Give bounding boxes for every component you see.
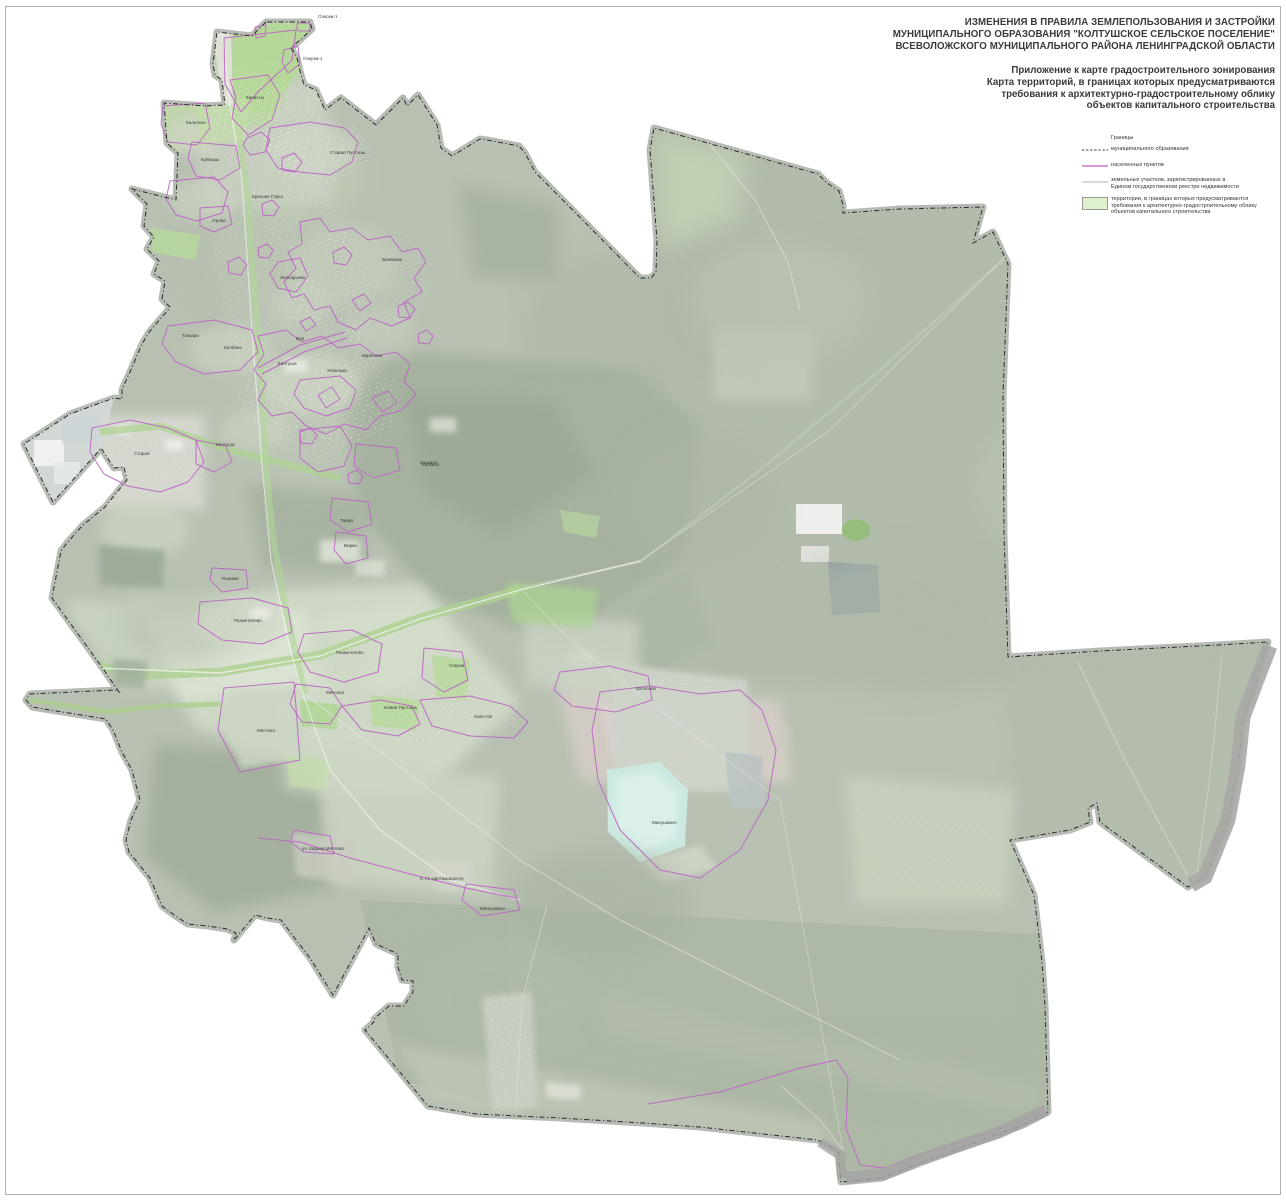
- svg-text:Вирки: Вирки: [344, 543, 357, 548]
- svg-text:Рыжики: Рыжики: [222, 576, 239, 581]
- svg-text:Старая Пустошь: Старая Пустошь: [330, 150, 366, 155]
- svg-text:Разметелево: Разметелево: [234, 618, 262, 623]
- svg-text:Новая Пустошь: Новая Пустошь: [384, 705, 418, 710]
- svg-text:Хязельки: Хязельки: [327, 368, 347, 373]
- svg-text:Орово: Орово: [212, 218, 226, 223]
- svg-text:Кальтино: Кальтино: [186, 120, 206, 125]
- svg-text:Хапо-Ое: Хапо-Ое: [474, 714, 493, 719]
- svg-text:уч. Карьер Мяглово: уч. Карьер Мяглово: [302, 846, 344, 851]
- svg-text:Старая: Старая: [134, 451, 150, 456]
- svg-text:Воейково: Воейково: [382, 256, 403, 262]
- svg-text:Озерки-1: Озерки-1: [318, 14, 338, 19]
- svg-text:Манушкино: Манушкино: [652, 820, 677, 825]
- svg-text:Кирполье: Кирполье: [362, 353, 383, 358]
- svg-text:Мяглово: Мяглово: [326, 690, 345, 695]
- svg-text:Красная Горка: Красная Горка: [252, 194, 283, 199]
- svg-text:п. ст. Цветмашцентр: п. ст. Цветмашцентр: [420, 876, 464, 881]
- svg-text:Куйворы: Куйворы: [201, 156, 219, 162]
- svg-text:Лепсарьево: Лепсарьево: [280, 275, 306, 280]
- svg-text:Канисты: Канисты: [246, 95, 264, 100]
- svg-text:Бор: Бор: [296, 336, 305, 341]
- svg-text:Ексолово: Ексолово: [636, 686, 657, 691]
- svg-text:Озерки: Озерки: [449, 663, 465, 668]
- svg-text:Разметелево: Разметелево: [336, 650, 364, 655]
- svg-text:Колтуши: Колтуши: [216, 442, 235, 447]
- svg-text:Колтуши: Колтуши: [278, 361, 297, 366]
- svg-text:Токкари: Токкари: [182, 333, 199, 338]
- svg-text:Колбино: Колбино: [224, 345, 243, 350]
- svg-text:Коркино: Коркино: [420, 460, 438, 465]
- svg-text:Мяглово: Мяглово: [257, 728, 276, 733]
- svg-text:Манушкино: Манушкино: [480, 906, 505, 911]
- svg-text:Тавры: Тавры: [340, 518, 353, 523]
- svg-text:Озерки-1: Озерки-1: [303, 56, 323, 61]
